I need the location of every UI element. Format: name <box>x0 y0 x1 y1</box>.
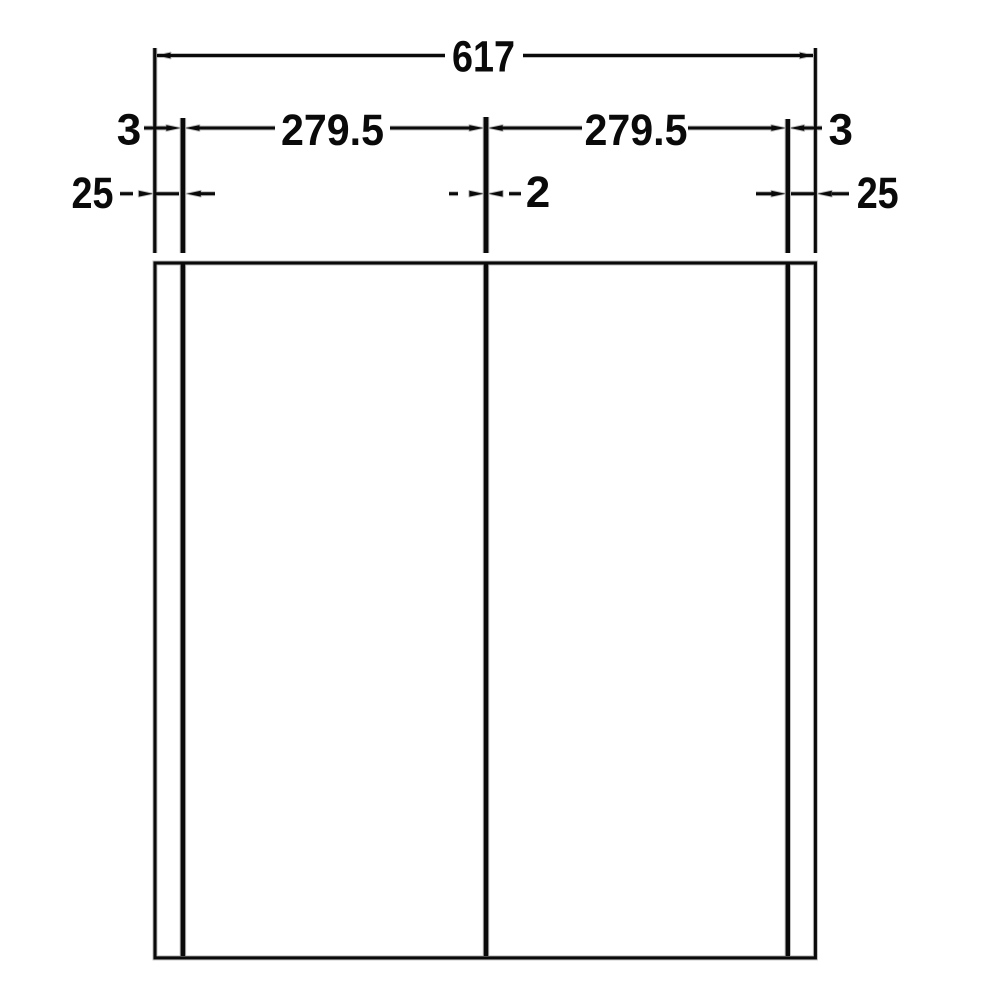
svg-text:3: 3 <box>117 106 141 155</box>
svg-text:25: 25 <box>857 169 899 218</box>
svg-text:279.5: 279.5 <box>281 106 384 155</box>
svg-text:2: 2 <box>526 168 550 217</box>
svg-text:25: 25 <box>72 169 114 218</box>
svg-text:3: 3 <box>829 106 853 155</box>
svg-text:279.5: 279.5 <box>585 106 688 155</box>
svg-text:617: 617 <box>452 33 515 82</box>
